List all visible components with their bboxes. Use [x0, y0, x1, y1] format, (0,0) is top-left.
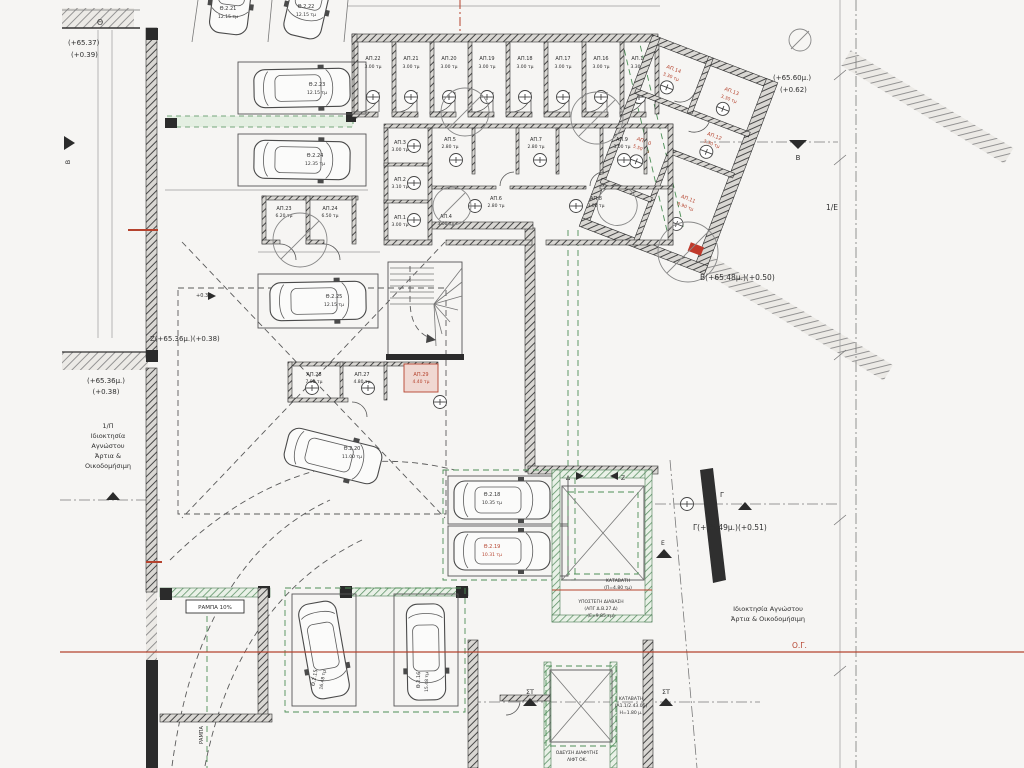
parking-area: 10.35 τμ [482, 500, 502, 506]
wall-green [645, 470, 652, 622]
parking-label: Θ.2.20 [344, 446, 361, 452]
stall-line [268, 0, 272, 42]
wall [352, 112, 378, 117]
wall [306, 240, 324, 244]
room-area: 3.00 τμ [587, 203, 604, 209]
room-label: ΑΠ.23 [276, 206, 291, 212]
parking-label: Θ.2.23 [309, 82, 326, 88]
room-area: 3.00 τμ [364, 64, 381, 70]
note: (ΑΠΓ Δ.Β.27.Δ) [584, 606, 617, 612]
column [165, 118, 177, 128]
room-area: 3.00 τμ [391, 147, 408, 153]
marker-letter: Β [796, 154, 801, 162]
wall [352, 34, 658, 42]
wall [352, 196, 356, 244]
room-label: ΑΠ.7 [530, 137, 542, 143]
elevation-text: (+65.60μ.) [773, 74, 811, 82]
note: ΥΠΟΣΤΕΓΗ ΔΙΑΒΑΣΗ [577, 599, 623, 605]
wall [600, 128, 603, 174]
wall [600, 178, 652, 202]
ownership-text: Ιδιοκτησία [91, 432, 126, 440]
floor-plan-canvas: ΑΠ.22 3.00 τμ ΑΠ.21 3.00 τμ ΑΠ.20 3.00 τ… [0, 0, 1024, 768]
elevation-text: Γ(+65.49μ.)(+0.51) [693, 523, 767, 532]
door-arc [500, 172, 514, 186]
note: (Ε=9.85 τμ) [587, 613, 614, 619]
door-arc [352, 402, 367, 417]
storage-row: ΑΠ.22 3.00 τμ ΑΠ.21 3.00 τμ ΑΠ.20 3.00 τ… [352, 42, 659, 117]
tread [434, 296, 462, 304]
room-area: 3.10 τμ [391, 184, 408, 190]
room-label: ΑΠ.4 [440, 214, 452, 220]
room-highlight [404, 364, 438, 392]
room-area: 4.80 τμ [353, 379, 370, 385]
parking-label: Θ.2.22 [298, 4, 315, 10]
room-label: ΑΠ.18 [517, 56, 532, 62]
parking-area: 10.31 τμ [482, 552, 502, 558]
room-area: 3.00 τμ [554, 64, 571, 70]
parking-area: 12.15 τμ [324, 302, 344, 308]
marker-letter: Θ [97, 18, 103, 27]
room-area: 3.00 τμ [391, 222, 408, 228]
floor-plan-drawing: ΑΠ.22 3.00 τμ ΑΠ.21 3.00 τμ ΑΠ.20 3.00 τ… [0, 0, 1024, 768]
wall [428, 128, 432, 240]
wall [262, 240, 280, 244]
wall [146, 28, 157, 358]
guide-dashed [170, 461, 455, 560]
car [270, 277, 367, 325]
ownership-text: 1/Π [102, 422, 113, 430]
benchmark-slash [791, 31, 809, 49]
elevation-text: Β(+65.48μ.)(+0.50) [700, 273, 775, 282]
elevation-text: Ζ(+65.36μ.)(+0.38) [150, 335, 220, 343]
parking-area: 12.35 τμ [305, 161, 325, 167]
vent-icon [408, 177, 421, 190]
ownership-text: Άρτια & Οικοδομήσιμη [731, 615, 805, 623]
wall-green [552, 470, 560, 622]
wall [516, 128, 519, 174]
wall [288, 362, 292, 402]
room-label: ΑΠ.19 [479, 56, 494, 62]
building-line-label: Ο.Γ. [792, 641, 807, 650]
room-area: 3.00 τμ [402, 64, 419, 70]
section-letter: Ε [661, 540, 665, 547]
level-arrow-icon [208, 292, 216, 300]
flag-icon [106, 492, 120, 500]
parking-area: 11.00 τμ [342, 454, 362, 460]
plot-label: 1/Ε [826, 203, 838, 212]
wall [392, 42, 396, 114]
section-arrow-icon [64, 136, 75, 150]
wall [354, 42, 358, 114]
wall [687, 56, 713, 114]
wall [146, 368, 157, 592]
parking-label: Θ.2.21 [220, 6, 237, 12]
wall-green [340, 588, 468, 596]
wall [430, 42, 434, 114]
vent-icon [658, 79, 675, 96]
vent-icon [519, 91, 532, 104]
tread [434, 282, 462, 304]
room-label: ΑΠ.22 [365, 56, 380, 62]
hatch-band [841, 50, 1013, 163]
room-area: 3.00 τμ [592, 64, 609, 70]
elevation-text: (+65.37) [68, 39, 100, 47]
room-area: 3.00 τμ [478, 64, 495, 70]
wall [468, 112, 494, 117]
room-label: ΑΠ.6 [490, 196, 502, 202]
wall [620, 42, 624, 114]
vent-icon [618, 154, 631, 167]
wall [386, 354, 464, 360]
wall [258, 588, 268, 718]
wall [430, 112, 456, 117]
car [454, 477, 550, 523]
wall [525, 228, 535, 472]
wall [468, 42, 472, 114]
note: ΚΑΤΑΒΑΤΗ [619, 696, 643, 702]
elevation-text: (+0.62) [780, 86, 807, 94]
wing-block: ΑΠ.14 3.30 τμ ΑΠ.13 3.30 τμ ΑΠ.12 3.30 τ… [579, 35, 778, 274]
room-label: ΑΠ.3 [394, 140, 406, 146]
stall-line [344, 0, 348, 42]
ownership-text: Άρτια & [95, 452, 121, 460]
stall-line [192, 0, 198, 42]
vent-icon [570, 200, 583, 213]
wall [384, 163, 428, 166]
wall [544, 112, 570, 117]
parking-area: 12.15 τμ [218, 14, 238, 20]
room-label: ΑΠ.17 [555, 56, 570, 62]
section-letter: Β [64, 160, 72, 164]
wall [384, 128, 388, 240]
wall [288, 398, 348, 402]
wall [582, 112, 608, 117]
parking-area: 15.48 τμ [424, 672, 430, 692]
vent-icon [405, 91, 418, 104]
vent-icon [450, 154, 463, 167]
wall [556, 128, 559, 174]
room-label: ΑΠ.1 [394, 215, 406, 221]
room-label: ΑΠ.20 [441, 56, 456, 62]
room-label: ΑΠ.16 [593, 56, 608, 62]
tread [434, 268, 462, 304]
vent-icon [408, 214, 421, 227]
car [454, 528, 550, 574]
hatch-band [62, 352, 148, 370]
stair-outline [388, 262, 462, 358]
vent-icon [534, 154, 547, 167]
room-area: 3.00 τμ [516, 64, 533, 70]
wall [446, 240, 532, 245]
parking-label: Θ.2.24 [307, 153, 324, 159]
room-area: 3.00 τμ [440, 64, 457, 70]
column [146, 350, 158, 362]
wall [506, 112, 532, 117]
section-letter: ΣΤ [526, 688, 534, 696]
walk-arrow [426, 334, 436, 343]
section-arrow-icon [656, 549, 672, 558]
elevation-text: (+65.36μ.) [87, 377, 125, 385]
room-area: 2.80 τμ [487, 203, 504, 209]
wall [262, 196, 266, 244]
elevation-text: (+0.39) [71, 51, 98, 59]
note: (Α1.1/2.43.05) [615, 703, 648, 709]
ramp-side-label: ΡΑΜΠΑ [199, 725, 205, 744]
ownership-text: Ιδιοκτησία Αγνώστου [733, 605, 803, 613]
room-area: 2.80 τμ [441, 144, 458, 150]
parking-label: Θ.2.18 [484, 492, 501, 498]
note: ΛΙΦΤ ΟΚ. [567, 757, 587, 763]
wall [340, 362, 343, 400]
room-area: 3.00 τμ [613, 144, 630, 150]
room-area: 4.40 τμ [412, 379, 429, 385]
wall [600, 186, 673, 189]
room-label: ΑΠ.28 [306, 372, 321, 378]
parking-label: Θ.2.16 [416, 672, 422, 689]
walk-line [410, 266, 430, 338]
wall [146, 660, 158, 768]
room-label: ΑΠ.24 [322, 206, 337, 212]
parking-label: Θ.2.25 [326, 294, 343, 300]
wall [160, 714, 272, 722]
car [254, 64, 351, 112]
vent-icon [367, 91, 380, 104]
room-label: ΑΠ.27 [354, 372, 369, 378]
car [254, 136, 351, 184]
parking-label: Θ.2.19 [484, 544, 501, 550]
vent-icon [557, 91, 570, 104]
room-label: ΑΠ.29 [413, 372, 428, 378]
wall [432, 186, 496, 189]
ramp-label: ΡΑΜΠΑ 10% [198, 605, 232, 611]
wall [384, 200, 428, 203]
wall-green [160, 588, 270, 597]
ownership-text: Οικοδομήσιμη [85, 462, 131, 470]
elevation-text: (+0.38) [93, 388, 120, 396]
wall [384, 362, 387, 400]
ownership-text: Αγνώστου [91, 442, 124, 450]
vent-icon [681, 498, 694, 511]
door-arc [506, 701, 520, 715]
parking-area: 12.15 τμ [296, 12, 316, 18]
flag-icon [738, 502, 752, 510]
wall [384, 240, 432, 245]
column [146, 28, 158, 40]
parking-areas: Θ.2.21 12.15 τμ Θ.2.22 12.15 τμ Θ.2.23 1… [192, 0, 575, 712]
parking-area: 12.15 τμ [307, 90, 327, 96]
wall [644, 128, 647, 174]
room-label: ΑΠ.8 [590, 196, 602, 202]
wall [506, 42, 510, 114]
section-letter: ΣΤ [662, 688, 670, 696]
vent-icon [714, 100, 731, 117]
room-label: ΑΠ.5 [444, 137, 456, 143]
shaft-slash [439, 193, 465, 219]
wall [693, 79, 777, 274]
wall [392, 112, 418, 117]
note: ΟΔΕΥΣΗ ΔΙΑΦΥΓΗΣ [556, 750, 599, 756]
section-letter: Ζ [621, 475, 625, 482]
room-area: 7.80 τμ [305, 379, 322, 385]
note: (Π=4.80 τμ) [604, 585, 632, 591]
column [160, 588, 172, 600]
room-area: 2.80 τμ [527, 144, 544, 150]
wall [655, 42, 659, 114]
room-label: ΑΠ.2 [394, 177, 406, 183]
note: ΚΑΤΑΒΑΤΗ [606, 578, 630, 584]
car [281, 422, 385, 490]
wall [306, 196, 310, 244]
room-label: ΑΠ.9 [616, 137, 628, 143]
room-label: ΑΠ.21 [403, 56, 418, 62]
note: Η=1.80 μ. [620, 710, 643, 716]
wall [384, 124, 673, 128]
wall [582, 42, 586, 114]
wall [510, 186, 586, 189]
wall [546, 240, 673, 245]
room-area: 6.50 τμ [321, 213, 338, 219]
benchmark-triangle-icon [789, 140, 807, 149]
marker-letter: Γ [720, 491, 724, 499]
wall [468, 640, 478, 768]
wall [654, 36, 774, 89]
wall [544, 42, 548, 114]
vent-icon [434, 396, 447, 409]
green-band [167, 116, 353, 127]
vent-icon [443, 91, 456, 104]
vent-icon [408, 140, 421, 153]
